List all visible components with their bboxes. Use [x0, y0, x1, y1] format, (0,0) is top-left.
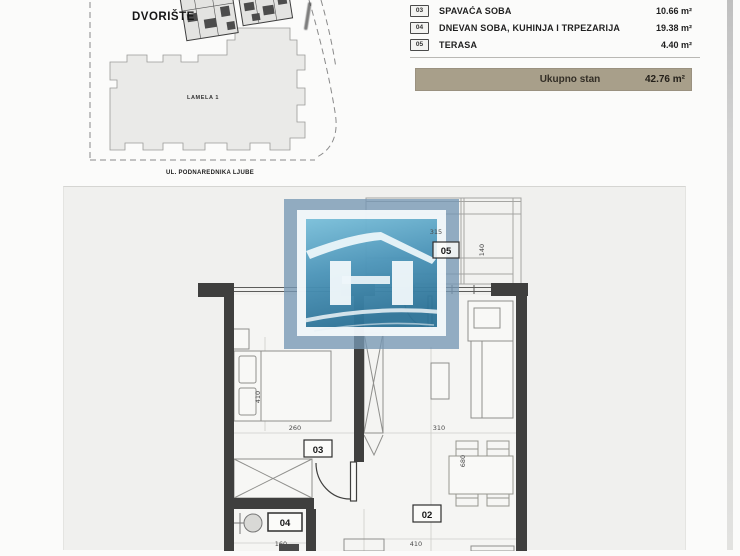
- total-label: Ukupno stan: [495, 74, 645, 85]
- dim-living-depth: 680: [459, 455, 467, 467]
- room-area: 4.40 m²: [661, 40, 692, 50]
- room-area: 10.66 m²: [656, 6, 692, 16]
- room-number-badge: 05: [410, 39, 429, 51]
- total-bar: Ukupno stan 42.76 m²: [415, 68, 692, 91]
- coffee-table: [431, 363, 449, 399]
- street-label: UL. PODNAREDNIKA LJUBE: [166, 170, 254, 176]
- room-label-terrace: 05: [441, 246, 452, 257]
- building-label: LAMELA 1: [187, 95, 219, 101]
- table-row: 05 TERASA 4.40 m²: [410, 36, 692, 53]
- courtyard-label: DVORIŠTE: [132, 10, 195, 23]
- total-area-value: 42.76 m²: [645, 74, 692, 85]
- room-area: 19.38 m²: [656, 23, 692, 33]
- dim-bathroom-width: 160: [275, 540, 287, 548]
- logo-pillar-right: [392, 261, 413, 305]
- table-row: 03 SPAVAĆA SOBA 10.66 m²: [410, 2, 692, 19]
- room-label-bedroom: 03: [313, 445, 324, 456]
- scrollbar[interactable]: [727, 0, 733, 550]
- room-label-living: 02: [422, 510, 433, 521]
- dim-living-bottom-width: 410: [410, 540, 422, 548]
- dim-bedroom-depth: 410: [254, 391, 262, 403]
- kitchen-counter: [468, 301, 513, 341]
- floor-plan-panel: 315 140 410 260 310 680 160 410 05 03 02…: [63, 186, 686, 550]
- street-name-vertical-label: [304, 2, 312, 30]
- site-plan: DVORIŠTE LAMELA 1 UL. PODNAREDNIKA LJUBE: [75, 0, 345, 180]
- area-table: 03 SPAVAĆA SOBA 10.66 m² 04 DNEVAN SOBA,…: [410, 2, 692, 53]
- dim-bedroom-width: 260: [289, 424, 301, 432]
- room-number-badge: 03: [410, 5, 429, 17]
- wardrobe: [234, 459, 312, 498]
- dim-terrace-depth: 140: [478, 244, 486, 256]
- dim-living-width: 310: [433, 424, 445, 432]
- sofa: [471, 341, 513, 418]
- room-name: SPAVAĆA SOBA: [439, 6, 656, 16]
- room-name: DNEVAN SOBA, KUHINJA I TRPEZARIJA: [439, 23, 656, 33]
- room-name: TERASA: [439, 40, 661, 50]
- table-separator: [410, 57, 700, 58]
- table-row: 04 DNEVAN SOBA, KUHINJA I TRPEZARIJA 19.…: [410, 19, 692, 36]
- room-number-badge: 04: [410, 22, 429, 34]
- logo-sill: [342, 276, 390, 284]
- room-label-bathroom: 04: [280, 518, 291, 529]
- dim-terrace-width: 315: [430, 228, 442, 236]
- bed: [234, 351, 331, 421]
- building-footprint: [110, 28, 305, 150]
- watermark-logo: [284, 199, 459, 349]
- floor-plan: 315 140 410 260 310 680 160 410 05 03 02…: [64, 187, 687, 551]
